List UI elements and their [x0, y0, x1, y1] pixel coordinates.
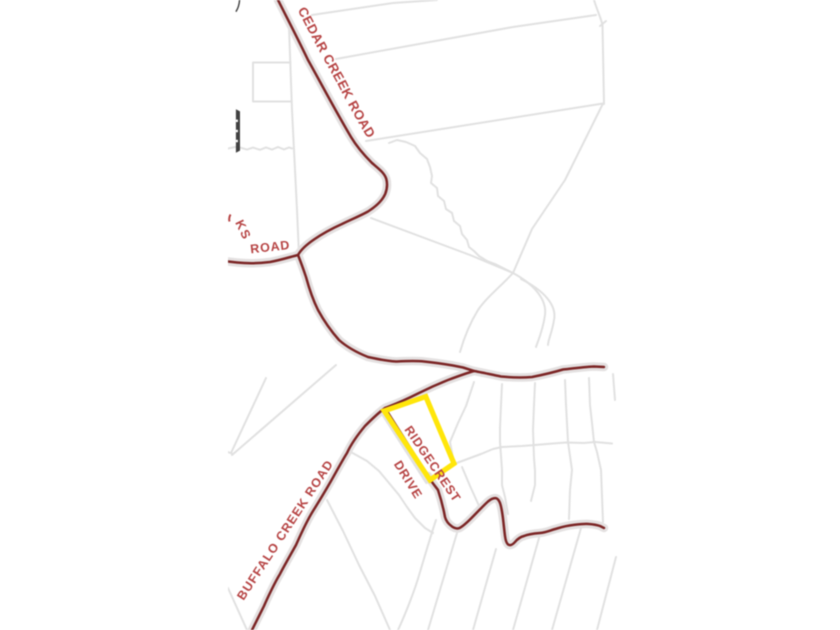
- svg-text:ROAD: ROAD: [250, 238, 291, 256]
- svg-text:BUFFALO CREEK ROAD: BUFFALO CREEK ROAD: [234, 457, 336, 602]
- svg-text:KS: KS: [232, 218, 254, 243]
